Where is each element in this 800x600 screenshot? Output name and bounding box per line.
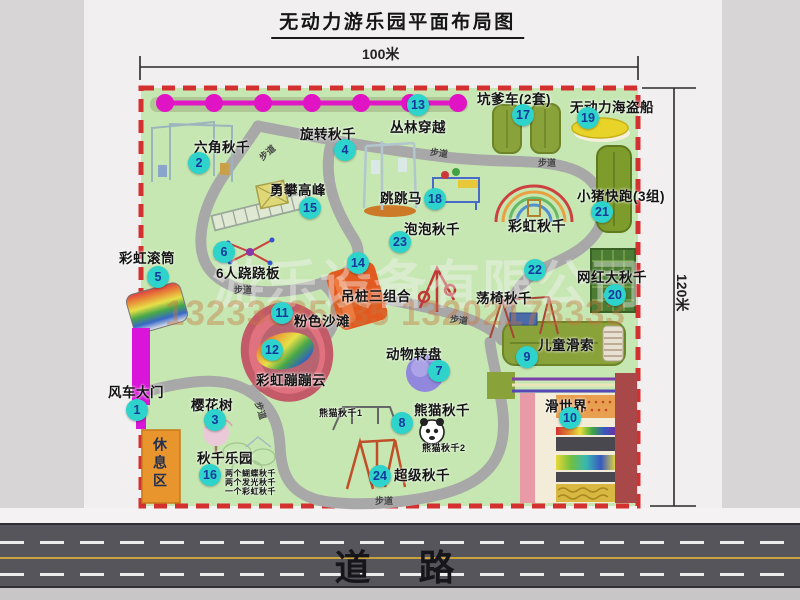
page-title: 无动力游乐园平面布局图: [271, 7, 524, 39]
animal-carousel-drawing: [406, 354, 444, 392]
road-label: 道 路: [334, 539, 460, 591]
pirate-ship-drawing: [572, 118, 630, 142]
dimension-width-label: 100米: [362, 44, 399, 64]
road: 道 路: [0, 523, 800, 588]
piggy-run-drawing: [597, 146, 631, 232]
panda-icon: [420, 418, 444, 444]
kids-zipline-drawing: [503, 322, 625, 365]
rest-area-label: 休息区: [150, 437, 170, 491]
park-layout-plan: 游乐设备有限公司 13233835635 13202178333 风车大门1六角…: [0, 0, 800, 600]
big-swing-drawing: [591, 249, 635, 312]
dimension-height-label: 120米: [672, 274, 692, 311]
